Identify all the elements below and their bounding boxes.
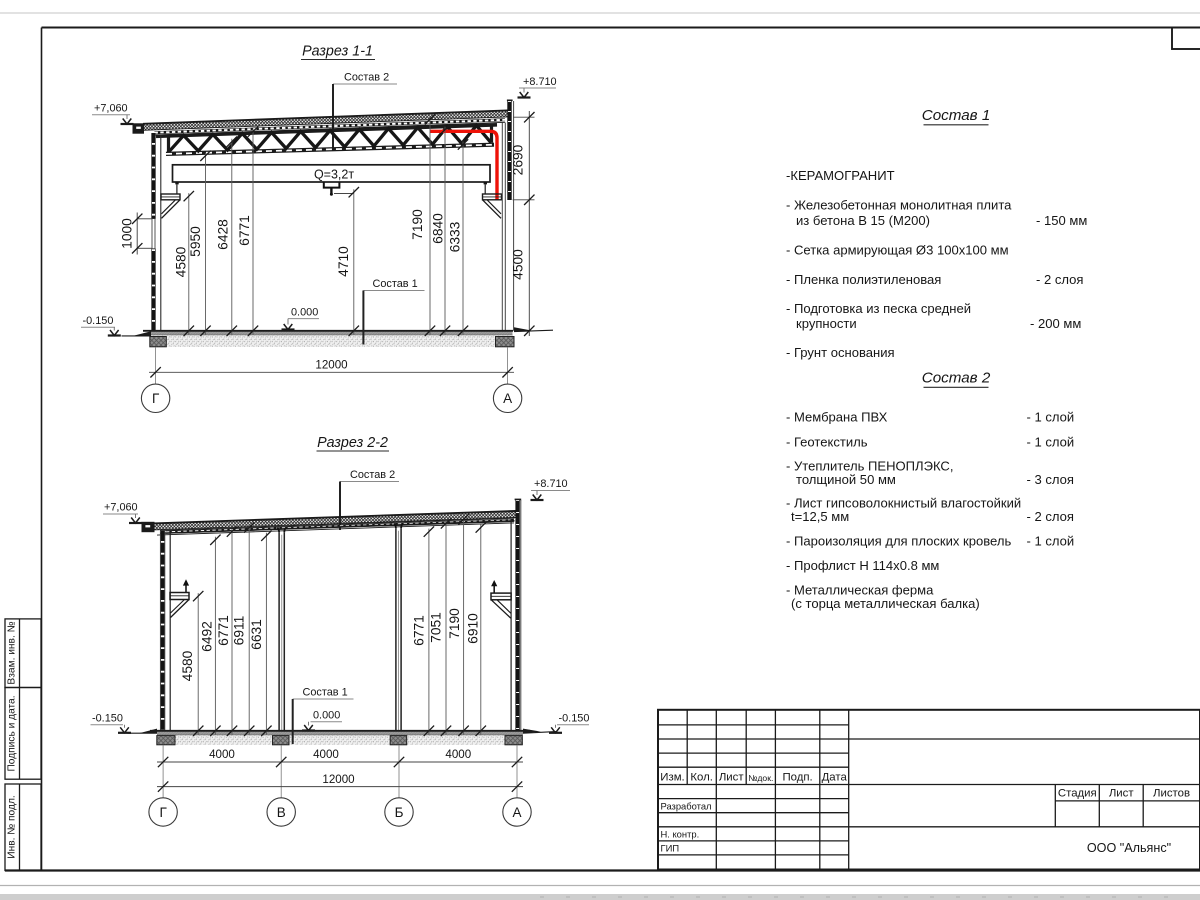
svg-text:6910: 6910 [465, 613, 480, 644]
svg-text:6428: 6428 [216, 219, 231, 250]
svg-text:Дата: Дата [822, 772, 848, 784]
svg-text:0.000: 0.000 [291, 307, 318, 319]
svg-text:+7,060: +7,060 [104, 502, 138, 514]
svg-text:Листов: Листов [1153, 788, 1190, 800]
svg-text:Лист: Лист [719, 772, 745, 784]
svg-text:Состав 1: Состав 1 [373, 278, 418, 290]
svg-text:6771: 6771 [412, 615, 427, 646]
svg-text:- 1 слой: - 1 слой [1027, 435, 1075, 450]
svg-text:ГИП: ГИП [661, 843, 680, 854]
svg-text:толщиной 50 мм: толщиной 50 мм [796, 472, 896, 487]
svg-text:7190: 7190 [410, 209, 425, 240]
svg-text:Инв. № подл.: Инв. № подл. [7, 795, 18, 858]
svg-text:Подп.: Подп. [782, 772, 812, 784]
svg-text:+7,060: +7,060 [94, 103, 128, 115]
svg-text:7190: 7190 [447, 608, 462, 639]
svg-text:- 200 мм: - 200 мм [1030, 316, 1081, 331]
svg-text:(с торца металлическая балка): (с торца металлическая балка) [791, 596, 980, 611]
svg-text:- 1 слой: - 1 слой [1027, 534, 1075, 549]
svg-text:5950: 5950 [188, 226, 203, 257]
svg-text:1000: 1000 [120, 218, 135, 249]
svg-text:- 150 мм: - 150 мм [1036, 213, 1087, 228]
svg-text:6631: 6631 [249, 619, 264, 650]
svg-text:Q=3,2т: Q=3,2т [314, 167, 354, 181]
svg-text:№док.: №док. [748, 773, 773, 783]
svg-text:В: В [277, 805, 286, 820]
svg-text:-0.150: -0.150 [559, 713, 590, 725]
svg-text:Разработал: Разработал [661, 801, 712, 812]
svg-text:из бетона В 15 (М200): из бетона В 15 (М200) [796, 213, 930, 228]
svg-text:4710: 4710 [336, 246, 351, 277]
svg-text:+8.710: +8.710 [523, 76, 557, 88]
svg-text:Взам. инв. №: Взам. инв. № [7, 621, 18, 684]
svg-text:- Сетка армирующая Ø3 100х100: - Сетка армирующая Ø3 100х100 мм [786, 243, 1009, 258]
svg-text:- 2 слоя: - 2 слоя [1027, 509, 1074, 524]
svg-text:4580: 4580 [174, 246, 189, 277]
svg-text:6911: 6911 [232, 616, 247, 646]
svg-text:Н. контр.: Н. контр. [661, 829, 700, 840]
svg-text:- Подготовка из песка средней: - Подготовка из песка средней [786, 301, 971, 316]
svg-text:12000: 12000 [322, 773, 354, 786]
svg-text:- Пароизоляция для плоских кро: - Пароизоляция для плоских кровель [786, 534, 1011, 549]
svg-text:Состав 2: Состав 2 [344, 72, 389, 84]
svg-text:Состав 2: Состав 2 [350, 469, 395, 481]
svg-text:4500: 4500 [511, 249, 526, 280]
svg-text:- 1 слой: - 1 слой [1027, 410, 1075, 425]
svg-text:0.000: 0.000 [313, 710, 340, 722]
svg-text:6492: 6492 [199, 621, 214, 652]
svg-text:- Профлист Н 114х0.8 мм: - Профлист Н 114х0.8 мм [786, 558, 939, 573]
svg-text:Подпись и дата.: Подпись и дата. [7, 695, 18, 771]
svg-text:4000: 4000 [445, 748, 471, 761]
svg-text:-КЕРАМОГРАНИТ: -КЕРАМОГРАНИТ [786, 168, 895, 183]
svg-text:Г: Г [159, 805, 167, 820]
svg-text:4000: 4000 [209, 748, 235, 761]
svg-text:6840: 6840 [430, 213, 445, 244]
svg-text:- Мембрана ПВХ: - Мембрана ПВХ [786, 410, 888, 425]
svg-text:6771: 6771 [216, 615, 231, 646]
svg-text:- 2 слоя: - 2 слоя [1036, 272, 1083, 287]
svg-text:Стадия: Стадия [1058, 788, 1097, 800]
svg-text:Состав 1: Состав 1 [922, 107, 991, 124]
svg-text:+8.710: +8.710 [534, 478, 568, 490]
svg-text:6333: 6333 [448, 221, 463, 252]
svg-text:крупности: крупности [796, 316, 857, 331]
svg-text:Б: Б [395, 805, 404, 820]
svg-text:- Геотекстиль: - Геотекстиль [786, 435, 868, 450]
svg-text:7051: 7051 [428, 612, 443, 643]
svg-text:А: А [512, 805, 521, 820]
svg-text:t=12,5 мм: t=12,5 мм [791, 509, 849, 524]
svg-text:Лист: Лист [1109, 788, 1135, 800]
svg-text:Кол.: Кол. [690, 772, 713, 784]
svg-text:12000: 12000 [315, 359, 347, 372]
svg-text:2690: 2690 [511, 144, 526, 175]
svg-text:Изм.: Изм. [660, 772, 684, 784]
svg-text:4000: 4000 [313, 748, 339, 761]
svg-text:А: А [503, 391, 512, 406]
svg-text:ООО "Альянс": ООО "Альянс" [1087, 841, 1171, 855]
svg-text:Г: Г [152, 391, 160, 406]
svg-text:-0.150: -0.150 [92, 713, 123, 725]
svg-text:-0.150: -0.150 [83, 315, 114, 327]
svg-text:- Железобетонная монолитная п: - Железобетонная монолитная плита [786, 198, 1012, 213]
svg-text:Состав 1: Состав 1 [303, 687, 348, 699]
svg-text:- Пленка полиэтиленовая: - Пленка полиэтиленовая [786, 272, 941, 287]
svg-text:Разрез 1-1: Разрез 1-1 [302, 44, 373, 60]
svg-text:Состав 2: Состав 2 [922, 370, 991, 387]
svg-text:4580: 4580 [180, 650, 195, 681]
svg-text:6771: 6771 [237, 215, 252, 246]
svg-text:- 3 слоя: - 3 слоя [1027, 472, 1074, 487]
svg-text:Разрез 2-2: Разрез 2-2 [317, 435, 388, 451]
svg-text:- Грунт основания: - Грунт основания [786, 345, 895, 360]
